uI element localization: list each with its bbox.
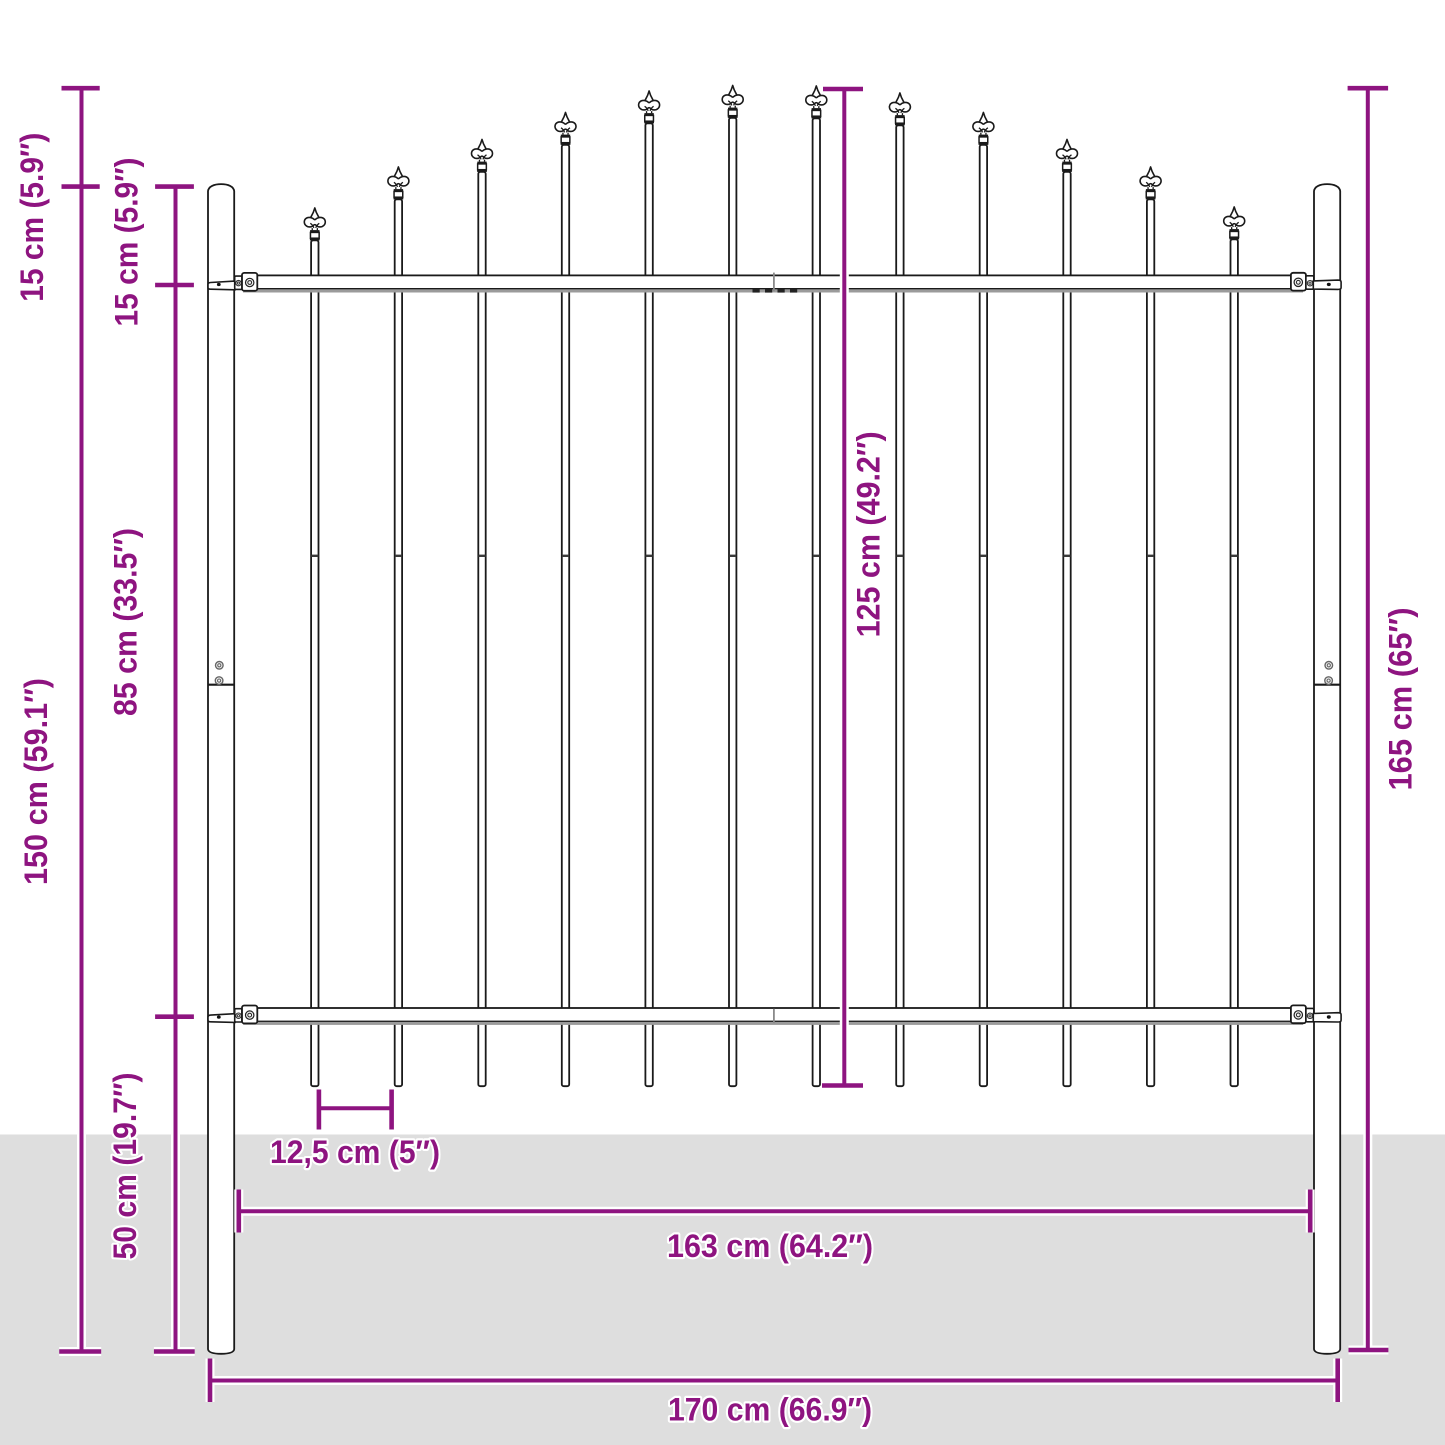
svg-text:163 cm (64.2″): 163 cm (64.2″) xyxy=(667,1228,873,1264)
svg-text:125 cm (49.2″): 125 cm (49.2″) xyxy=(851,431,887,637)
svg-text:15 cm (5.9″): 15 cm (5.9″) xyxy=(109,158,145,327)
svg-text:170 cm (66.9″): 170 cm (66.9″) xyxy=(668,1392,872,1428)
svg-text:85 cm (33.5″): 85 cm (33.5″) xyxy=(108,528,144,716)
svg-text:50 cm (19.7″): 50 cm (19.7″) xyxy=(107,1073,143,1260)
svg-text:12,5 cm (5″): 12,5 cm (5″) xyxy=(270,1134,440,1170)
svg-text:150 cm (59.1″): 150 cm (59.1″) xyxy=(18,678,54,885)
svg-text:15 cm (5.9″): 15 cm (5.9″) xyxy=(14,133,50,302)
svg-text:165 cm (65″): 165 cm (65″) xyxy=(1382,608,1418,791)
